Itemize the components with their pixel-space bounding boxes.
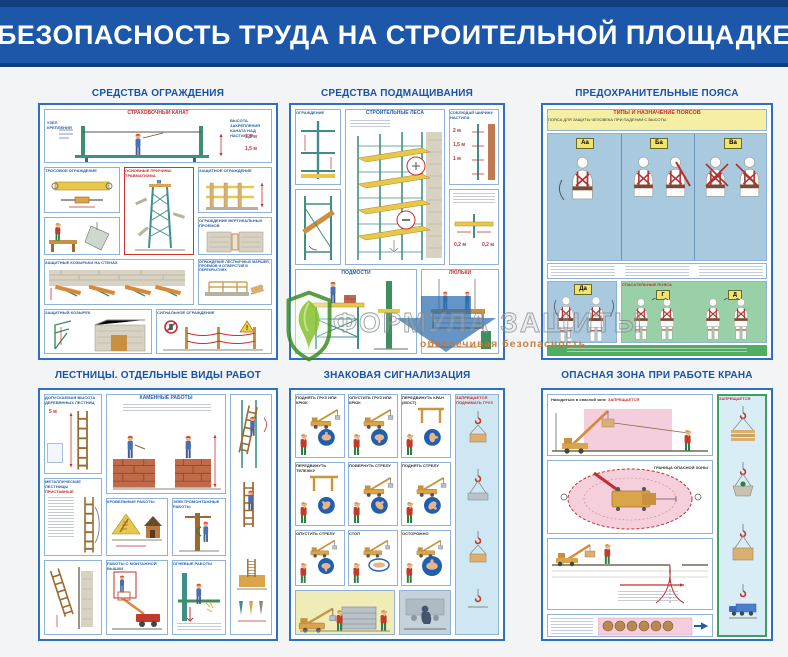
cradles-caption: ЛЮЛЬКИ <box>422 270 498 276</box>
scaffold-fencing-illustration <box>299 119 337 181</box>
scaffold-fencing-caption: ОГРАЖДЕНИЕ <box>296 110 340 115</box>
belt-text-strip <box>547 263 767 279</box>
gesture-cell-3: ПЕРЕДВИНУТЬ КРАН (МОСТ) <box>401 394 451 458</box>
crane-zone-illustration <box>550 403 710 455</box>
deck-width-illustration <box>470 124 496 182</box>
deck-width-caption: СОБЛЮДАЙ ШИРИНУ НАСТИЛА <box>450 110 498 120</box>
logs-strip <box>547 614 713 637</box>
stair-openings-caption: ОГРАЖДЕНИЕ ЛЕСТНИЧНЫХ МАРШЕЙ, ПРОЕМОВ И … <box>199 260 271 272</box>
zone-top-view-illustration <box>550 463 710 531</box>
rescue-belts-caption: СПАСАТЕЛЬНЫЕ ПОЯСА <box>622 282 766 287</box>
metal-ladder-caption: МЕТАЛЛИЧЕСКИЕ ЛЕСТНИЦЫ <box>45 479 101 489</box>
hot-work-caption: ОГНЕВЫЕ РАБОТЫ <box>173 561 225 566</box>
cradles-cell: ЛЮЛЬКИ <box>421 269 499 354</box>
logs-note <box>551 618 593 634</box>
belt-types-title: ТИПЫ И НАЗНАЧЕНИЕ ПОЯСОВ <box>548 110 766 117</box>
title-signals: ЗНАКОВАЯ СИГНАЛИЗАЦИЯ <box>289 370 505 381</box>
signals-forbidden-column: ЗАПРЕЩАЕТСЯ ПОДНИМАТЬ ГРУЗ <box>455 394 499 635</box>
safety-rope-cell: СТРАХОВОЧНЫЙ КАНАТ УЗЕЛ КРЕПЛЕНИЯ ВЫСОТА… <box>44 109 272 163</box>
protective-canopy-cell: ЗАЩИТНЫЙ КОЗЫРЕК <box>44 309 152 354</box>
injury-causes-illustration <box>133 180 187 252</box>
protective-fence-cell: ЗАЩИТНОЕ ОГРАЖДЕНИЕ <box>198 167 272 213</box>
belt-type-label-aa: Аа <box>576 138 594 149</box>
gesture-caption-6: ПОДНЯТЬ СТРЕЛУ <box>402 463 450 468</box>
gesture-illustration-5 <box>351 475 395 525</box>
svg-text:!: ! <box>246 325 248 332</box>
metal-ladder-cell: МЕТАЛЛИЧЕСКИЕ ЛЕСТНИЦЫ ПРИСТАВНЫЕ <box>44 478 102 556</box>
belt-types-header: ТИПЫ И НАЗНАЧЕНИЕ ПОЯСОВ ПОЯСА ДЛЯ ЗАЩИТ… <box>547 109 767 131</box>
signal-fence-caption: СИГНАЛЬНОЕ ОГРАЖДЕНИЕ <box>157 310 271 315</box>
electrical-caption: ЭЛЕКТРОМОНТАЖНЫЕ РАБОТЫ <box>173 499 225 509</box>
wood-ladder-caption: ДОПУСКАЕМАЯ ВЫСОТА ДЕРЕВЯННЫХ ЛЕСТНИЦ <box>45 395 101 405</box>
protective-fence-illustration <box>202 179 268 211</box>
deck-dim-2: 2 м <box>453 128 461 134</box>
belt-text-1 <box>551 266 615 277</box>
hot-work-cell: ОГНЕВЫЕ РАБОТЫ <box>172 560 226 635</box>
deck-section-note <box>453 193 495 205</box>
header-banner: БЕЗОПАСНОСТЬ ТРУДА НА СТРОИТЕЛЬНОЙ ПЛОЩА… <box>0 0 788 67</box>
cradles-illustration <box>425 279 495 351</box>
rescue-belts-figures <box>624 298 766 343</box>
wall-canopies-illustration <box>49 270 189 304</box>
scaffold-brace-cell <box>295 189 341 265</box>
gesture-cell-6: ПОДНЯТЬ СТРЕЛУ <box>401 462 451 526</box>
deck-dim-1: 1 м <box>453 156 461 162</box>
title-scaffolding: СРЕДСТВА ПОДМАЩИВАНИЯ <box>289 88 505 99</box>
belt-types-subtitle: ПОЯСА ДЛЯ ЗАЩИТЫ ЧЕЛОВЕКА ПРИ ПАДЕНИИ С … <box>548 117 766 122</box>
roofing-caption: КРОВЕЛЬНЫЕ РАБОТЫ <box>107 499 167 504</box>
construction-scaffolds-caption: СТРОИТЕЛЬНЫЕ ЛЕСА <box>346 110 444 116</box>
page-title: БЕЗОПАСНОСТЬ ТРУДА НА СТРОИТЕЛЬНОЙ ПЛОЩА… <box>0 20 788 51</box>
safety-rope-caption: СТРАХОВОЧНЫЙ КАНАТ <box>45 110 271 116</box>
crane-forbidden-column: ЗАПРЕЩАЕТСЯ <box>717 394 767 637</box>
belt-da-cell: Да <box>547 281 617 343</box>
vertical-openings-cell: ОГРАЖДЕНИЕ ВЕРТИКАЛЬНЫХ ПРОЕМОВ <box>198 217 272 255</box>
belt-types-figures <box>548 150 767 261</box>
title-ladders: ЛЕСТНИЦЫ. ОТДЕЛЬНЫЕ ВИДЫ РАБОТ <box>38 370 278 381</box>
injury-causes-caption: ОСНОВНЫЕ ПРИЧИНЫ ТРАВМАТИЗМА <box>125 168 193 178</box>
gesture-cell-1: ПОДНЯТЬ ГРУЗ ИЛИ КРЮК <box>295 394 345 458</box>
signal-fence-cell: СИГНАЛЬНОЕ ОГРАЖДЕНИЕ ! <box>156 309 272 354</box>
masonry-cell: КАМЕННЫЕ РАБОТЫ <box>106 394 226 494</box>
trench-note <box>618 591 678 601</box>
belt-text-2 <box>625 266 689 277</box>
crane-scene-illustration <box>298 593 392 633</box>
ladder-dim-5: 5 м <box>49 409 57 415</box>
crane-scene-cell <box>295 590 395 635</box>
gesture-illustration-3 <box>404 407 448 457</box>
gesture-illustration-9 <box>404 540 448 585</box>
gesture-illustration-7 <box>298 540 342 585</box>
hook-ladder-illustration <box>49 565 97 631</box>
gesture-cell-2: ОПУСТИТЬ ГРУЗ ИЛИ КРЮК <box>348 394 398 458</box>
wall-canopies-caption: ЗАЩИТНЫЕ КОЗЫРЬКИ НА СТЕНАХ <box>45 260 193 265</box>
deck-section-illustration <box>453 212 495 242</box>
stair-openings-cell: ОГРАЖДЕНИЕ ЛЕСТНИЧНЫХ МАРШЕЙ, ПРОЕМОВ И … <box>198 259 272 305</box>
deck-dim-15: 1,5 м <box>453 142 465 148</box>
deck-dim-02a: 0,2 м <box>454 242 466 248</box>
injury-causes-cell: ОСНОВНЫЕ ПРИЧИНЫ ТРАВМАТИЗМА <box>124 167 194 255</box>
wood-ladder-detail <box>47 443 63 463</box>
masonry-illustration <box>111 415 223 491</box>
title-crane-zone: ОПАСНАЯ ЗОНА ПРИ РАБОТЕ КРАНА <box>541 370 773 381</box>
trestles-illustration <box>300 279 412 351</box>
roofing-illustration <box>110 508 164 554</box>
tower-work-illustration <box>110 570 164 632</box>
trestles-cell: ПОДМОСТИ <box>295 269 417 354</box>
protective-canopy-illustration <box>49 319 149 353</box>
deck-width-cell: СОБЛЮДАЙ ШИРИНУ НАСТИЛА 2 м 1,5 м 1 м <box>449 109 499 185</box>
gesture-illustration-2 <box>351 407 395 457</box>
wall-canopies-cell: ЗАЩИТНЫЕ КОЗЫРЬКИ НА СТЕНАХ <box>44 259 194 305</box>
signals-forbidden-caption: ЗАПРЕЩАЕТСЯ ПОДНИМАТЬ ГРУЗ <box>456 395 498 405</box>
cable-fence-caption: ТРОСОВОЕ ОГРАЖДЕНИЕ <box>45 168 119 173</box>
electrical-cell: ЭЛЕКТРОМОНТАЖНЫЕ РАБОТЫ <box>172 498 226 556</box>
safety-rope-illustration <box>51 124 231 162</box>
gesture-caption-2: ОПУСТИТЬ ГРУЗ ИЛИ КРЮК <box>349 395 397 405</box>
signal-fence-illustration: ! <box>161 319 267 353</box>
belt-types-panel: Аа Ба Ва <box>547 133 767 261</box>
rescue-belts-cell: СПАСАТЕЛЬНЫЕ ПОЯСА Г Д <box>621 281 767 343</box>
fence-workers-illustration <box>47 220 117 254</box>
gesture-caption-8: СТОП <box>349 531 397 536</box>
zone-note-forbidden: ЗАПРЕЩАЕТСЯ <box>608 397 639 402</box>
gesture-illustration-4 <box>298 475 342 525</box>
title-belts: ПРЕДОХРАНИТЕЛЬНЫЕ ПОЯСА <box>541 88 773 99</box>
fence-workers-cell <box>44 217 120 255</box>
metal-ladder-text <box>48 497 74 537</box>
logs-illustration <box>598 617 710 636</box>
seated-person-cell <box>399 590 451 635</box>
gesture-cell-9: ОСТОРОЖНО <box>401 530 451 586</box>
trench-scene <box>547 538 713 610</box>
hook-ladder-cell <box>44 560 102 635</box>
gesture-illustration-6 <box>404 475 448 525</box>
crane-forbidden-illustration <box>727 406 759 632</box>
zone-top-view: ГРАНИЦА ОПАСНОЙ ЗОНЫ <box>547 460 713 534</box>
stair-openings-illustration <box>203 274 269 304</box>
metal-ladder-illustration <box>77 497 101 553</box>
gesture-caption-1: ПОДНЯТЬ ГРУЗ ИЛИ КРЮК <box>296 395 344 405</box>
dim-12: 1,2 м <box>245 134 257 140</box>
poster-fencing: СТРАХОВОЧНЫЙ КАНАТ УЗЕЛ КРЕПЛЕНИЯ ВЫСОТА… <box>38 103 278 360</box>
forbidden-loads-illustration <box>466 411 490 631</box>
roofing-cell: КРОВЕЛЬНЫЕ РАБОТЫ <box>106 498 168 556</box>
title-fencing: СРЕДСТВА ОГРАЖДЕНИЯ <box>38 88 278 99</box>
belt-type-label-ba: Ба <box>650 138 668 149</box>
cable-fence-cell: ТРОСОВОЕ ОГРАЖДЕНИЕ <box>44 167 120 213</box>
deck-dim-02b: 0,2 м <box>482 242 494 248</box>
belt-text-3 <box>699 266 763 277</box>
hot-work-illustration <box>176 571 222 631</box>
construction-scaffolds-illustration <box>350 132 442 262</box>
hot-work-note <box>177 623 221 631</box>
tower-work-cell: РАБОТЫ С МОНТАЖНОЙ ВЫШКИ <box>106 560 168 635</box>
gesture-cell-7: ОПУСТИТЬ СТРЕЛУ <box>295 530 345 586</box>
gesture-caption-5: ПОВЕРНУТЬ СТРЕЛУ <box>349 463 397 468</box>
ladder-tips-illustration <box>234 597 270 631</box>
wood-ladder-illustration <box>67 411 97 471</box>
gesture-illustration-8 <box>351 540 395 585</box>
poster-ladders: ДОПУСКАЕМАЯ ВЫСОТА ДЕРЕВЯННЫХ ЛЕСТНИЦ 5 … <box>38 388 278 641</box>
gesture-illustration-1 <box>298 407 342 457</box>
masonry-caption: КАМЕННЫЕ РАБОТЫ <box>107 395 225 401</box>
cable-fence-illustration <box>49 178 115 210</box>
gesture-cell-5: ПОВЕРНУТЬ СТРЕЛУ <box>348 462 398 526</box>
electrical-illustration <box>177 511 221 553</box>
gesture-caption-9: ОСТОРОЖНО <box>402 531 450 536</box>
gesture-caption-3: ПЕРЕДВИНУТЬ КРАН (МОСТ) <box>402 395 450 405</box>
scaffold-note-lines <box>350 120 390 129</box>
dim-15: 1,5 м <box>245 146 257 152</box>
construction-scaffolds-cell: СТРОИТЕЛЬНЫЕ ЛЕСА <box>345 109 445 265</box>
belt-type-label-va: Ва <box>724 138 742 149</box>
ladder-rules-illustration <box>234 398 270 548</box>
crane-zone-scene: Находиться в опасной зоне ЗАПРЕЩАЕТСЯ <box>547 394 713 456</box>
belt-da-figures <box>550 294 616 343</box>
poster-signals: ПОДНЯТЬ ГРУЗ ИЛИ КРЮК ОПУСТИТЬ ГРУЗ ИЛИ … <box>289 388 505 641</box>
protective-fence-caption: ЗАЩИТНОЕ ОГРАЖДЕНИЕ <box>199 168 271 173</box>
vertical-openings-illustration <box>205 230 267 254</box>
ladder-rules-column <box>230 394 272 635</box>
seated-person-illustration <box>402 593 448 633</box>
gesture-caption-4: ПЕРЕДВИНУТЬ ТЕЛЕЖКУ <box>296 463 344 473</box>
gesture-caption-7: ОПУСТИТЬ СТРЕЛУ <box>296 531 344 536</box>
wood-ladder-cell: ДОПУСКАЕМАЯ ВЫСОТА ДЕРЕВЯННЫХ ЛЕСТНИЦ 5 … <box>44 394 102 474</box>
belt-footer-strip <box>547 345 767 356</box>
poster-crane-zone: Находиться в опасной зоне ЗАПРЕЩАЕТСЯ ГР… <box>541 388 773 641</box>
scaffold-fencing-cell: ОГРАЖДЕНИЕ <box>295 109 341 185</box>
belt-footer-text <box>567 348 747 353</box>
leaning-caption: ПРИСТАВНЫЕ <box>45 489 101 494</box>
zone-note-prefix: Находиться в опасной зоне <box>551 397 606 402</box>
vertical-openings-caption: ОГРАЖДЕНИЕ ВЕРТИКАЛЬНЫХ ПРОЕМОВ <box>199 218 271 228</box>
poster-belts: ТИПЫ И НАЗНАЧЕНИЕ ПОЯСОВ ПОЯСА ДЛЯ ЗАЩИТ… <box>541 103 773 360</box>
crane-forbidden-caption: ЗАПРЕЩАЕТСЯ <box>719 396 765 401</box>
gesture-cell-4: ПЕРЕДВИНУТЬ ТЕЛЕЖКУ <box>295 462 345 526</box>
gesture-cell-8: СТОП <box>348 530 398 586</box>
masonry-note <box>123 404 211 412</box>
safety-poster-board: БЕЗОПАСНОСТЬ ТРУДА НА СТРОИТЕЛЬНОЙ ПЛОЩА… <box>0 0 788 657</box>
protective-canopy-caption: ЗАЩИТНЫЙ КОЗЫРЕК <box>45 310 151 315</box>
ladder-stand-illustration <box>235 557 269 593</box>
scaffold-brace-illustration <box>299 194 337 262</box>
deck-section-cell: 0,2 м 0,2 м <box>449 189 499 265</box>
trestles-caption: ПОДМОСТИ <box>296 270 416 276</box>
poster-scaffolding: ОГРАЖДЕНИЕ СТРОИТЕЛЬНЫЕ ЛЕСА <box>289 103 505 360</box>
